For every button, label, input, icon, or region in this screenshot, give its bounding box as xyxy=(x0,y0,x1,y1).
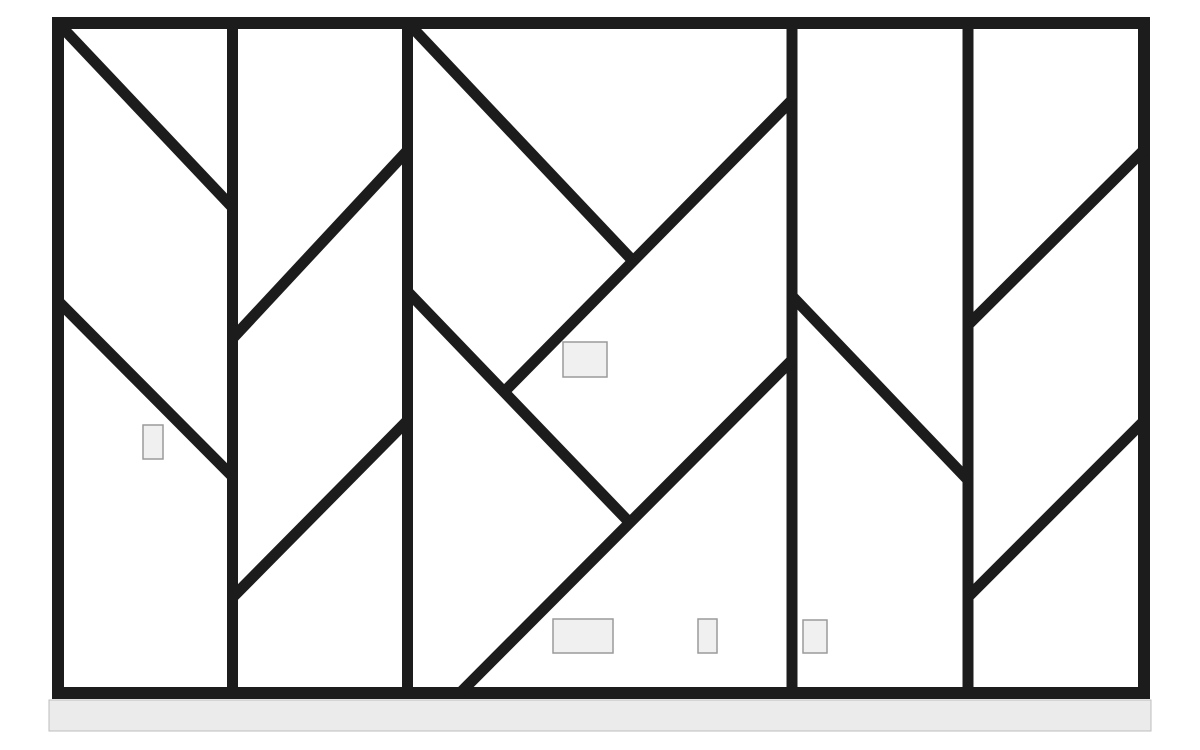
tag-panel1 xyxy=(143,425,163,459)
tag-panel3-bottom-right xyxy=(698,619,717,653)
tag-panel3-middle xyxy=(563,342,607,377)
tag-panel3-bottom-left xyxy=(553,619,613,653)
floor-strip xyxy=(49,700,1151,731)
panel-divider-diagram xyxy=(0,0,1200,750)
tag-panel4-bottom xyxy=(803,620,827,653)
divider-pattern-svg xyxy=(0,0,1200,750)
